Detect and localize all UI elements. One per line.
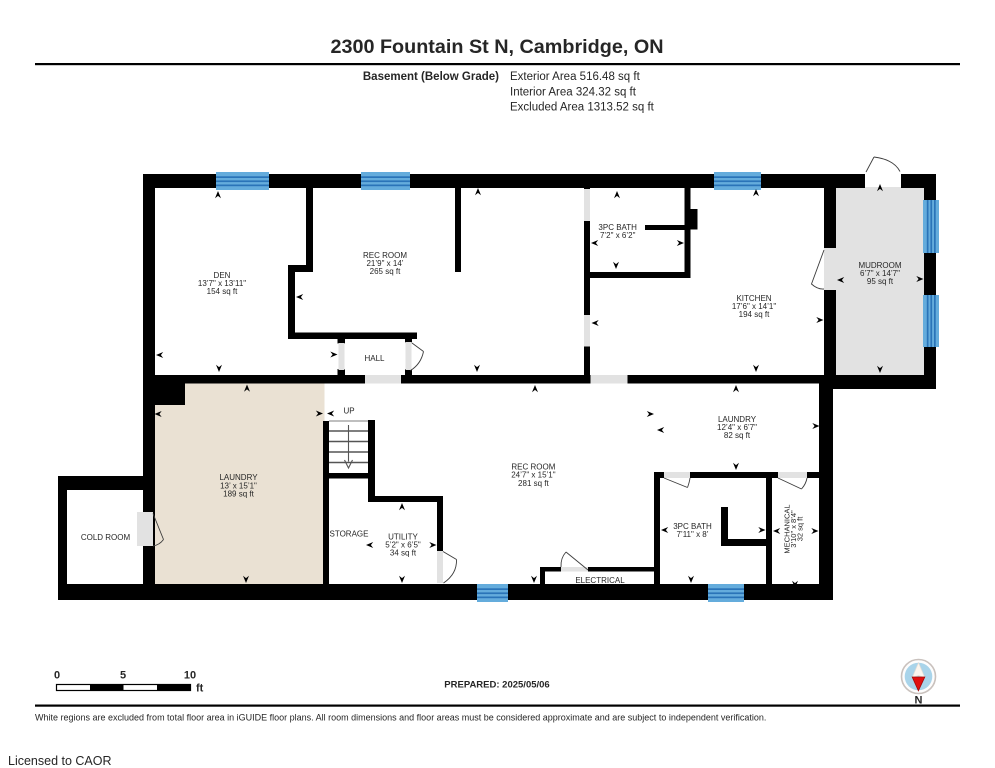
svg-text:HALL: HALL xyxy=(364,354,385,363)
svg-text:281 sq ft: 281 sq ft xyxy=(518,479,549,488)
svg-text:194 sq ft: 194 sq ft xyxy=(739,310,770,319)
svg-text:32 sq ft: 32 sq ft xyxy=(795,516,804,542)
svg-text:82 sq ft: 82 sq ft xyxy=(724,431,751,440)
svg-text:Basement (Below Grade): Basement (Below Grade) xyxy=(363,71,499,83)
svg-text:Licensed to CAOR: Licensed to CAOR xyxy=(8,754,112,768)
svg-text:STORAGE: STORAGE xyxy=(330,530,369,539)
svg-text:0: 0 xyxy=(54,670,60,682)
svg-text:265 sq ft: 265 sq ft xyxy=(370,267,401,276)
svg-text:COLD ROOM: COLD ROOM xyxy=(81,533,131,542)
svg-text:ft: ft xyxy=(196,683,204,695)
svg-text:5: 5 xyxy=(120,670,126,682)
svg-text:154 sq ft: 154 sq ft xyxy=(207,287,238,296)
svg-text:White regions are excluded fro: White regions are excluded from total fl… xyxy=(35,713,766,723)
svg-text:Excluded Area 1313.52 sq ft: Excluded Area 1313.52 sq ft xyxy=(510,102,655,114)
svg-text:UP: UP xyxy=(343,407,354,416)
svg-text:189 sq ft: 189 sq ft xyxy=(223,490,254,499)
svg-text:2300 Fountain St N, Cambridge,: 2300 Fountain St N, Cambridge, ON xyxy=(330,36,663,58)
svg-text:PREPARED: 2025/05/06: PREPARED: 2025/05/06 xyxy=(444,680,549,691)
svg-text:Interior Area 324.32 sq ft: Interior Area 324.32 sq ft xyxy=(510,86,637,98)
svg-text:95 sq ft: 95 sq ft xyxy=(867,277,894,286)
svg-text:10: 10 xyxy=(184,670,196,682)
svg-text:34 sq ft: 34 sq ft xyxy=(390,548,417,557)
svg-text:7’2" x 6’2": 7’2" x 6’2" xyxy=(600,231,636,240)
svg-text:7’11" x 8’: 7’11" x 8’ xyxy=(676,530,708,539)
svg-text:Exterior Area 516.48 sq ft: Exterior Area 516.48 sq ft xyxy=(510,71,641,83)
svg-text:ELECTRICAL: ELECTRICAL xyxy=(575,576,625,585)
